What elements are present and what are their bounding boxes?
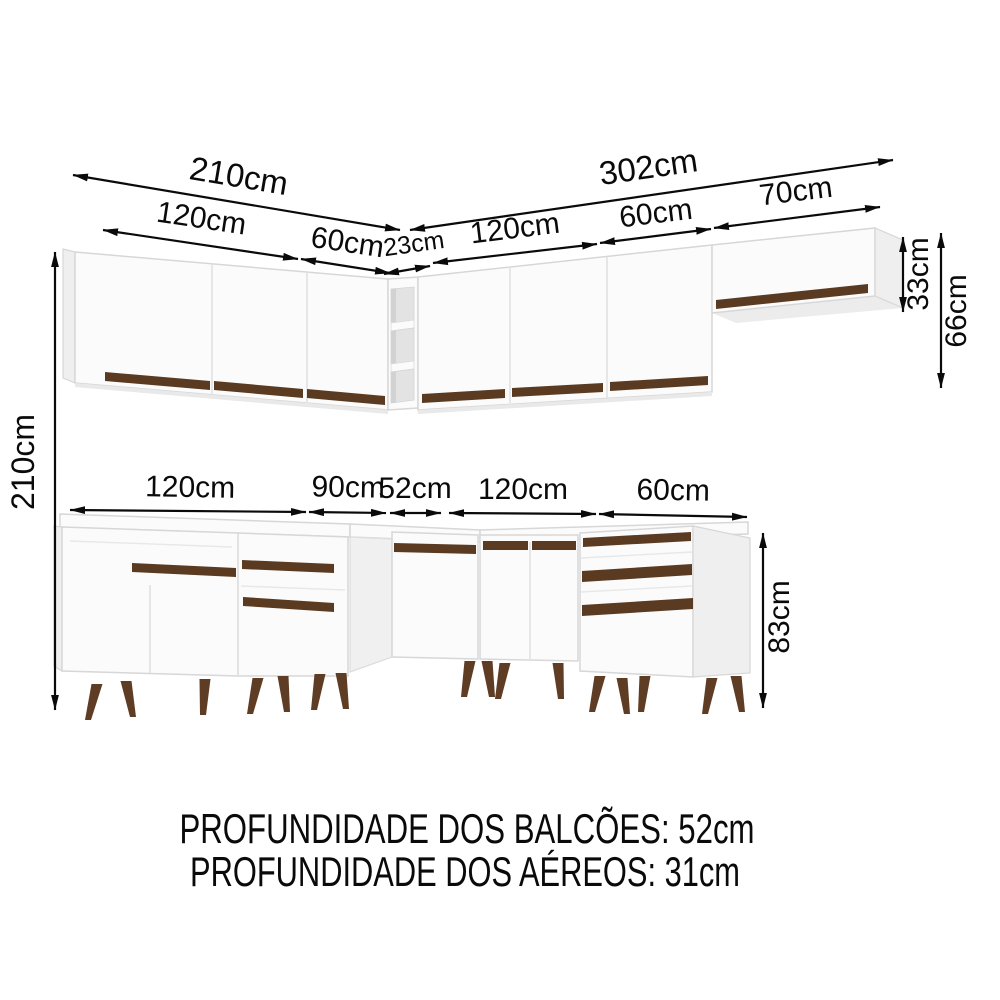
cabinet-foot (121, 681, 137, 717)
door-handle-strip (532, 541, 576, 550)
dim-upper-right-120-label: 120cm (468, 207, 561, 251)
cabinet-foot (617, 678, 631, 714)
cabinet-foot (495, 663, 511, 699)
upper-corner-shelf (388, 277, 418, 410)
dim-lower-120-left-arrow (70, 510, 306, 512)
door-handle-strip (483, 541, 528, 550)
shelf-niche-shade (391, 289, 396, 323)
balcao-120-right (480, 535, 578, 661)
dim-total-height-label: 210cm (5, 414, 41, 510)
balcao-120-left (54, 526, 238, 676)
cabinet-foot (553, 663, 565, 699)
cabinet-foot (702, 678, 718, 714)
dim-lower-120-left-label: 120cm (145, 470, 236, 505)
kitchen-dimensions-diagram: 210cm 302cm 120cm 60cm 23cm 120cm 60cm 7… (0, 0, 1000, 1000)
dim-upper-right-60-arrow (600, 229, 711, 243)
depth-notes: PROFUNDIDADE DOS BALCÕES: 52cm PROFUNDID… (180, 805, 755, 895)
dim-lower-120-right-label: 120cm (478, 473, 568, 506)
dim-corner-23-arrow (384, 266, 430, 274)
cabinet-foot (85, 684, 103, 720)
shelf-niche-shade (391, 372, 396, 403)
cabinet-foot (638, 676, 651, 712)
cabinet-foot (336, 673, 350, 709)
cabinet-foot (247, 678, 264, 714)
dim-lower-90-label: 90cm (311, 470, 385, 504)
cabinet-foot (461, 661, 476, 697)
cabinet-foot (731, 676, 746, 712)
corner-filler (350, 537, 392, 672)
note-balcoes-depth: PROFUNDIDADE DOS BALCÕES: 52cm (180, 805, 755, 852)
dim-33-label: 33cm (902, 237, 935, 310)
upper-end-cabinet (712, 228, 903, 323)
dim-upper-right-70-arrow (714, 207, 880, 228)
cabinet-foot (482, 661, 496, 697)
dim-upper-total-right-label: 302cm (597, 141, 700, 192)
dim-lower-60-arrow (599, 514, 747, 517)
dim-upper-left-60-label: 60cm (309, 221, 386, 264)
dim-lower-60-label: 60cm (636, 473, 710, 507)
note-aereos-depth: PROFUNDIDADE DOS AÉREOS: 31cm (190, 848, 740, 895)
dim-corner-23-label: 23cm (382, 226, 446, 262)
upper-left-side-panel (63, 249, 75, 383)
end-cabinet-side (875, 228, 903, 308)
dim-66-label: 66cm (940, 274, 973, 347)
cabinet-foot (589, 676, 606, 712)
dim-lower-90-arrow (309, 512, 386, 513)
cabinet-foot (200, 679, 211, 715)
dim-83-label: 83cm (763, 580, 796, 653)
dim-lower-52-label: 52cm (378, 472, 451, 505)
cabinet-foot (311, 674, 326, 710)
balcao-120-right-front (480, 535, 578, 661)
dim-lower-120-right-arrow (449, 513, 596, 514)
diagram-canvas: 210cm 302cm 120cm 60cm 23cm 120cm 60cm 7… (0, 0, 1000, 1000)
shelf-niche-shade (391, 331, 396, 364)
balcao-60-side-panel (693, 526, 750, 677)
dim-upper-total-left-label: 210cm (187, 149, 291, 202)
cabinet-foot (278, 676, 291, 712)
